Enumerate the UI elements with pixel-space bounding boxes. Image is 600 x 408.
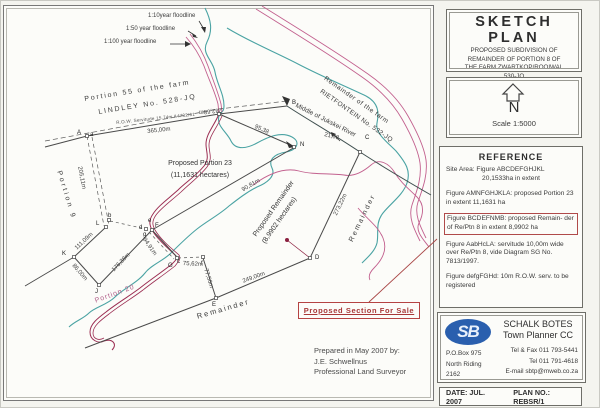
floodline-10-label: 1:10year floodline [148,13,195,19]
row-servitude-dashed [45,101,287,141]
prepared-by-block: Prepared in May 2007 by: J.E. Schwellnus… [314,346,406,378]
proposed-section-for-sale-label: Proposed Section For Sale [304,306,414,315]
boundary-a-l-dashed1 [87,136,104,226]
point-N: N [300,142,304,148]
f50-arrow-line [188,31,196,36]
proposed-portion23-line1: Proposed Portion 23 [150,160,250,167]
point-J: J [95,289,98,295]
point-g: g [143,232,146,238]
proposed-section-for-sale-box: Proposed Section For Sale [298,302,420,319]
point-f: f [201,261,203,267]
point-B: B [292,100,296,106]
point-C: C [365,135,369,141]
boundary-k-edge [25,257,74,286]
reference-leader-line [369,239,437,302]
point-F: F [155,223,159,229]
prepared-line3: Professional Land Surveyor [314,367,406,378]
point-a: a [90,132,93,138]
prepared-line2: J.E. Schwellnus [314,357,406,368]
floodline-50-label: 1:50 year floodline [126,26,175,32]
point-e: e [148,218,151,224]
point-d: d [139,225,142,231]
floodline-100-label: 1:100 year floodline [104,39,156,45]
sketch-plan-scan: 1:10year floodline 1:50 year floodline 1… [0,0,600,408]
servitude-c-f-dashed [178,257,202,258]
dim-75: 75,62m [183,261,203,268]
point-b: b [108,213,111,219]
f10-arrowhead [201,27,206,33]
point-A: A [77,130,81,136]
point-c: c [177,259,180,265]
point-G: G [168,263,173,269]
b-flag [282,96,290,106]
point-K: K [62,251,66,257]
boundary-a-l-dashed2 [92,137,109,225]
jukskei-river-east-path [227,28,408,263]
proposed-portion23-line2: (11,1631 hectares) [150,172,250,179]
north-arrow-icon [503,84,523,101]
point-D: D [315,255,319,261]
map-linework [0,0,600,408]
prepared-line1: Prepared in May 2007 by: [314,346,406,357]
floodline-nw-1 [186,37,219,114]
point-L: L [96,221,99,227]
red-dot-leader [287,240,310,258]
jukskei-river-path [69,8,297,327]
